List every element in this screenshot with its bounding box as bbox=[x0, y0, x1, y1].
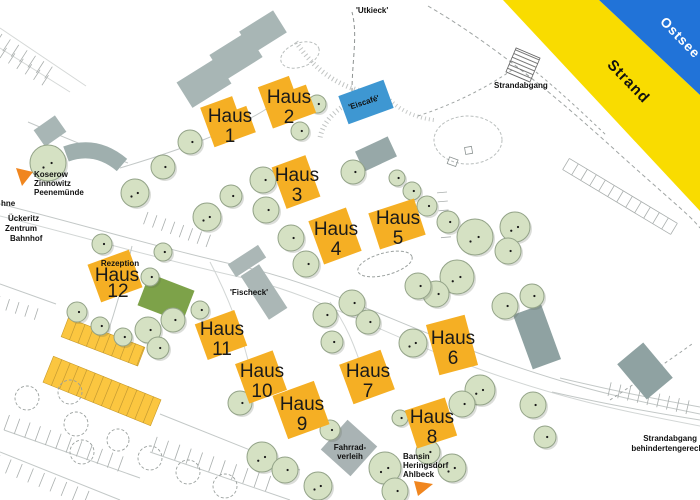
site-map-canvas: Strand Ostsee Haus 1 Haus 2 Haus 3 Haus … bbox=[0, 0, 700, 500]
resort-site-map: Strand Ostsee Haus 1 Haus 2 Haus 3 Haus … bbox=[0, 0, 700, 500]
direction-southwest-2: Zentrum bbox=[5, 224, 37, 233]
haus-9-number: 9 bbox=[297, 414, 308, 435]
street-name-fragment: hne bbox=[1, 199, 16, 208]
direction-southwest-1: Ückeritz bbox=[8, 214, 39, 223]
west-direction-arrow bbox=[16, 168, 33, 186]
haus-9-label: Haus bbox=[280, 394, 324, 415]
haus-5-label: Haus bbox=[376, 208, 420, 229]
haus-6-label: Haus bbox=[431, 328, 475, 349]
haus-1-label: Haus bbox=[208, 106, 252, 127]
haus-4-number: 4 bbox=[331, 239, 342, 260]
curved-road-band bbox=[66, 150, 122, 165]
haus-12-number: 12 bbox=[107, 281, 128, 302]
haus-10-label: Haus bbox=[240, 361, 284, 382]
direction-west-3: Peenemünde bbox=[34, 188, 84, 197]
haus-2-number: 2 bbox=[284, 107, 295, 128]
haus-8-number: 8 bbox=[427, 427, 438, 448]
direction-southeast-1: Bansin bbox=[403, 452, 430, 461]
haus-10-number: 10 bbox=[251, 381, 272, 402]
haus-8-label: Haus bbox=[410, 407, 454, 428]
accessible-beach-access-label-2: behindertengerecht bbox=[631, 444, 700, 453]
service-building bbox=[513, 305, 561, 370]
direction-west-1: Koserow bbox=[34, 170, 69, 179]
direction-southwest-3: Bahnhof bbox=[10, 234, 43, 243]
utkieck-label: 'Utkieck' bbox=[356, 6, 388, 15]
beach-bands: Strand Ostsee bbox=[503, 0, 700, 211]
haus-3-label: Haus bbox=[275, 165, 319, 186]
bike-rental-label-1: Fahrrad- bbox=[334, 443, 367, 452]
haus-5-number: 5 bbox=[393, 228, 404, 249]
southeast-direction-arrow bbox=[414, 481, 433, 496]
service-building bbox=[34, 115, 67, 146]
reception-label: Rezeption bbox=[101, 259, 139, 268]
haus-3-number: 3 bbox=[292, 185, 303, 206]
haus-7-number: 7 bbox=[363, 381, 374, 402]
haus-2-label: Haus bbox=[267, 87, 311, 108]
haus-6-number: 6 bbox=[448, 348, 459, 369]
houses bbox=[87, 71, 478, 448]
direction-west-2: Zinnowitz bbox=[34, 179, 71, 188]
beach-access-label: Strandabgang bbox=[494, 81, 548, 90]
haus-11-number: 11 bbox=[212, 339, 232, 360]
haus-11-label: Haus bbox=[200, 319, 244, 340]
service-building bbox=[617, 342, 673, 399]
haus-7-label: Haus bbox=[346, 361, 390, 382]
haus-4-label: Haus bbox=[314, 219, 358, 240]
bike-rental-label-2: verleih bbox=[337, 452, 363, 461]
accessible-beach-access-label-1: Strandabgang bbox=[643, 434, 697, 443]
haus-1-number: 1 bbox=[225, 126, 236, 147]
direction-southeast-2: Heringsdorf bbox=[403, 461, 449, 470]
fischeck-label: 'Fischeck' bbox=[230, 288, 268, 297]
direction-southeast-3: Ahlbeck bbox=[403, 470, 435, 479]
beach-access-stairs bbox=[506, 48, 540, 82]
